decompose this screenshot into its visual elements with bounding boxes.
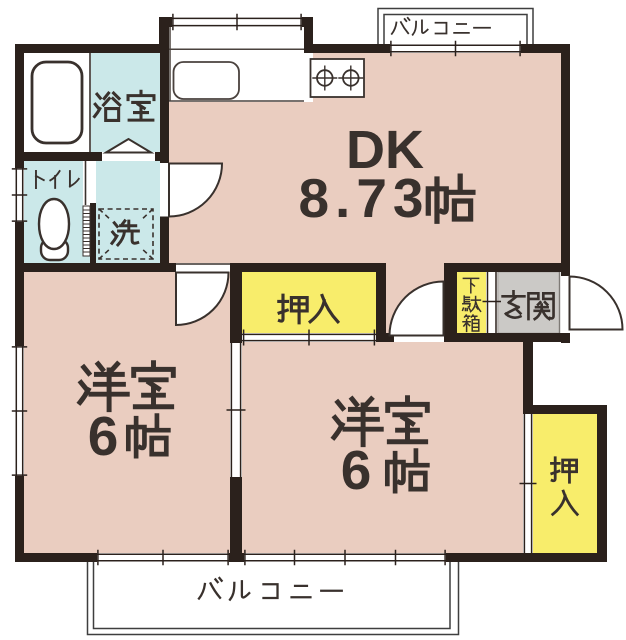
- svg-text:8.73: 8.73: [298, 167, 429, 229]
- svg-text:6: 6: [341, 439, 372, 501]
- svg-text:6: 6: [88, 405, 119, 467]
